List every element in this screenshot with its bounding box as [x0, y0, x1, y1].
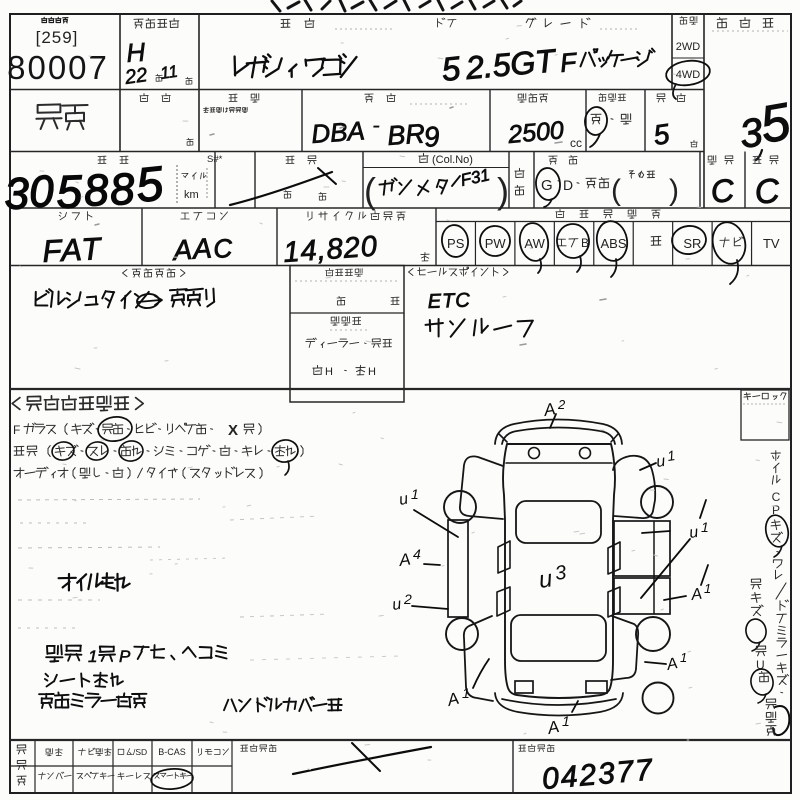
svg-text:4WD: 4WD	[676, 69, 701, 81]
svg-text:11: 11	[159, 62, 179, 83]
svg-text:0: 0	[28, 167, 56, 217]
svg-text:[259]: [259]	[36, 28, 79, 47]
svg-text:8: 8	[82, 165, 110, 216]
svg-text:4: 4	[413, 546, 421, 562]
svg-text:SR: SR	[683, 236, 701, 251]
svg-text:80007: 80007	[7, 49, 109, 86]
svg-text:2: 2	[403, 591, 412, 607]
svg-text:1: 1	[704, 581, 711, 596]
svg-text:3: 3	[4, 169, 31, 219]
svg-text:PW: PW	[485, 236, 507, 251]
svg-text:C: C	[772, 490, 781, 504]
svg-text:PS: PS	[447, 236, 465, 251]
svg-text:-: -	[372, 112, 380, 139]
svg-text:km: km	[184, 189, 199, 201]
svg-text:1: 1	[462, 685, 470, 701]
svg-text:9: 9	[422, 121, 441, 153]
svg-text:1: 1	[680, 650, 687, 665]
svg-text:2: 2	[557, 397, 566, 412]
svg-text:F: F	[13, 423, 20, 437]
svg-text:ABS: ABS	[600, 236, 626, 251]
svg-text:(: (	[611, 174, 621, 207]
svg-text:1: 1	[562, 713, 570, 729]
svg-text:(Col.No): (Col.No)	[432, 154, 473, 166]
svg-text:B-CAS: B-CAS	[158, 747, 186, 757]
svg-text:C: C	[212, 233, 233, 264]
svg-text:/SD: /SD	[133, 747, 147, 757]
svg-text:D: D	[563, 177, 573, 193]
svg-text:1: 1	[701, 519, 709, 535]
svg-text:P: P	[119, 647, 131, 666]
svg-text:AW: AW	[524, 236, 545, 251]
svg-text:X: X	[228, 422, 238, 439]
svg-text:2WD: 2WD	[676, 41, 701, 53]
svg-text:FAT: FAT	[42, 231, 104, 269]
svg-text:BR: BR	[386, 118, 426, 151]
svg-text:AA: AA	[170, 232, 213, 266]
svg-text:cc: cc	[570, 136, 582, 150]
svg-text:(: (	[364, 170, 376, 211]
svg-text:H: H	[368, 366, 376, 378]
svg-text:): )	[669, 174, 679, 207]
svg-text:TV: TV	[763, 236, 780, 251]
svg-text:G: G	[541, 177, 553, 194]
svg-text:5: 5	[56, 165, 84, 218]
svg-text:2500: 2500	[506, 116, 565, 149]
svg-text:A: A	[689, 586, 703, 604]
svg-text:H: H	[125, 37, 146, 68]
svg-text:8: 8	[108, 164, 136, 215]
svg-text:1: 1	[88, 647, 97, 666]
svg-text:H: H	[325, 366, 333, 378]
svg-text:DBA: DBA	[310, 115, 365, 149]
svg-text:22: 22	[123, 64, 149, 89]
svg-text:S#*: S#*	[207, 154, 223, 165]
svg-text:1: 1	[411, 486, 419, 502]
svg-text:): )	[497, 170, 509, 211]
svg-text:A: A	[397, 550, 412, 571]
svg-text:14,820: 14,820	[282, 230, 379, 269]
svg-text:C: C	[753, 172, 782, 212]
svg-text:ETC: ETC	[427, 290, 471, 313]
svg-text:C: C	[709, 172, 737, 210]
